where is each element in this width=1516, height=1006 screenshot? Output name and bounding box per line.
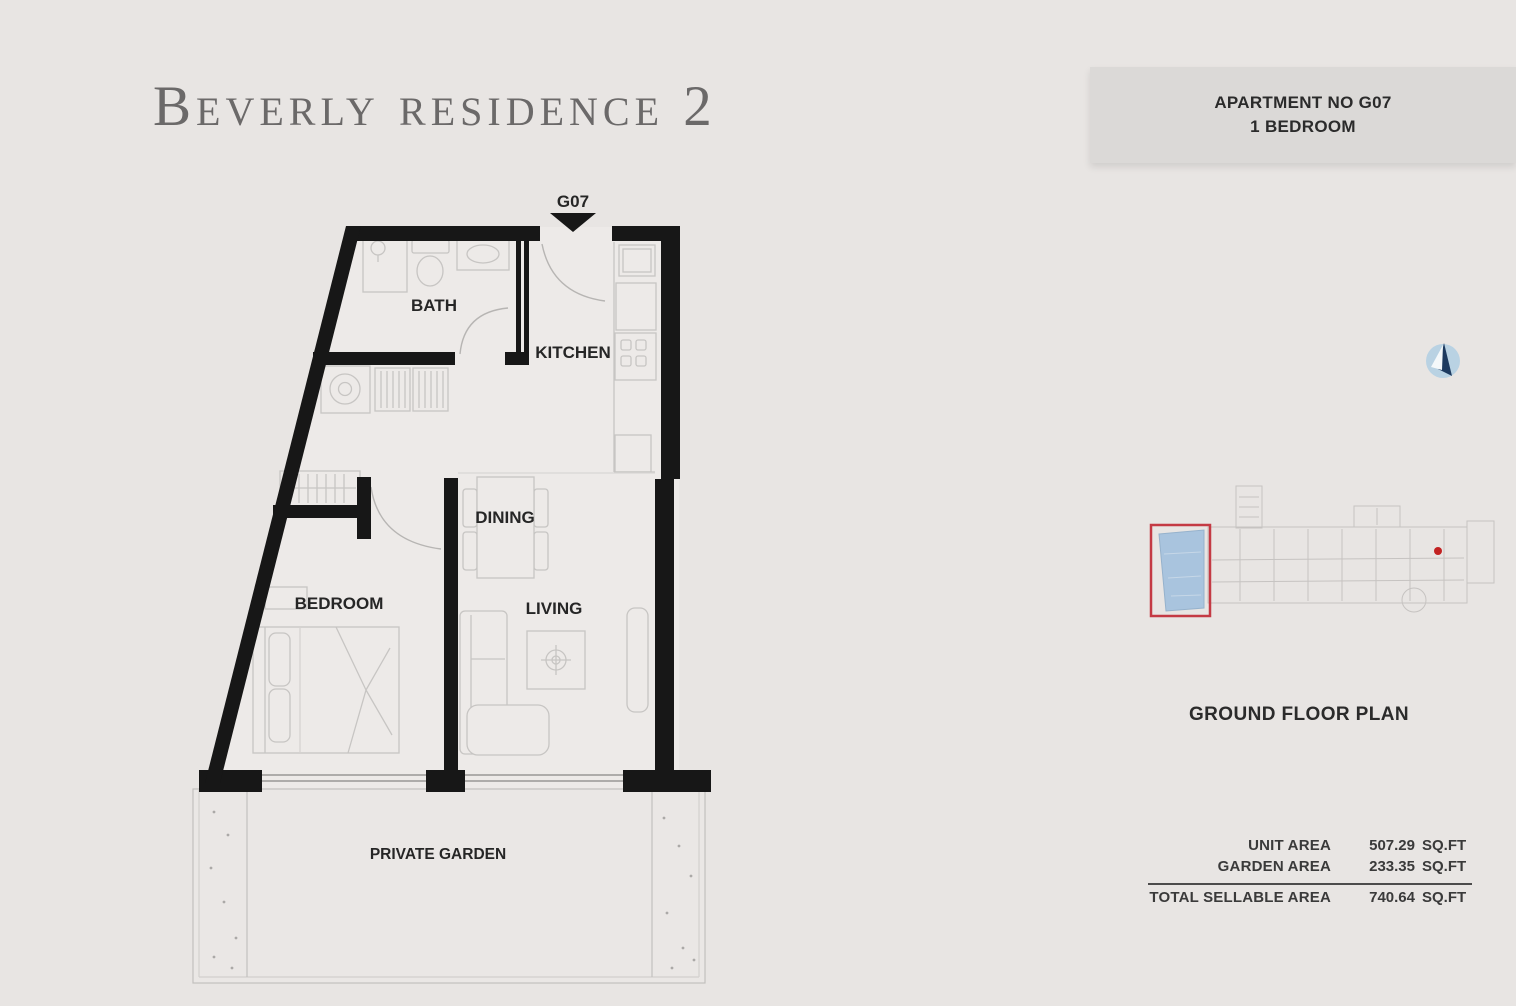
- row-value: 507.29: [1365, 837, 1415, 854]
- table-row-garden-area: GARDEN AREA 233.35 SQ.FT: [1148, 858, 1472, 879]
- locator-caption: GROUND FLOOR PLAN: [1139, 704, 1459, 726]
- row-unit: SQ.FT: [1422, 837, 1472, 854]
- entrance-label: G07: [557, 192, 589, 211]
- compass-icon: [1426, 343, 1460, 378]
- brochure-page: Beverly residence 2 APARTMENT NO G07 1 B…: [0, 0, 1516, 1006]
- private-garden: [193, 789, 705, 983]
- row-unit: SQ.FT: [1422, 889, 1472, 906]
- room-label-bath: BATH: [411, 296, 457, 315]
- table-row-unit-area: UNIT AREA 507.29 SQ.FT: [1148, 837, 1472, 858]
- room-label-bedroom: BEDROOM: [295, 594, 384, 613]
- floor-plan: G07 BATH KITCHEN DINING BEDROOM LIVING P…: [193, 192, 711, 983]
- table-row-total-area: TOTAL SELLABLE AREA 740.64 SQ.FT: [1148, 889, 1472, 910]
- room-label-kitchen: KITCHEN: [535, 343, 611, 362]
- row-label: TOTAL SELLABLE AREA: [1148, 889, 1331, 906]
- room-label-living: LIVING: [526, 599, 583, 618]
- locator-red-dot: [1434, 547, 1442, 555]
- room-label-dining: DINING: [475, 508, 535, 527]
- table-total-divider: TOTAL SELLABLE AREA 740.64 SQ.FT: [1148, 883, 1472, 910]
- locator-plan: [1151, 486, 1494, 616]
- row-value: 740.64: [1365, 889, 1415, 906]
- area-table: UNIT AREA 507.29 SQ.FT GARDEN AREA 233.3…: [1148, 837, 1472, 910]
- room-label-garden: PRIVATE GARDEN: [370, 846, 506, 863]
- row-value: 233.35: [1365, 858, 1415, 875]
- row-label: GARDEN AREA: [1148, 858, 1331, 875]
- row-unit: SQ.FT: [1422, 858, 1472, 875]
- row-label: UNIT AREA: [1148, 837, 1331, 854]
- locator-highlight-unit: [1151, 525, 1210, 616]
